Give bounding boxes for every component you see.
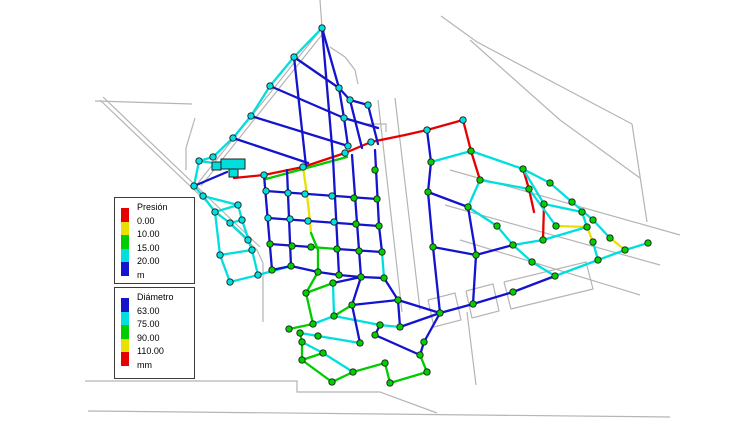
pipe-link[interactable] <box>428 192 433 247</box>
junction-node[interactable] <box>196 158 202 164</box>
junction-node[interactable] <box>315 269 321 275</box>
junction-node[interactable] <box>310 321 316 327</box>
tank-icon[interactable] <box>229 169 238 177</box>
pipe-link[interactable] <box>307 195 310 221</box>
pipe-link[interactable] <box>513 240 543 245</box>
junction-node[interactable] <box>382 360 388 366</box>
junction-node[interactable] <box>595 257 601 263</box>
pipe-link[interactable] <box>463 120 471 151</box>
junction-node[interactable] <box>230 135 236 141</box>
pipe-link[interactable] <box>497 226 513 245</box>
legend-color-chip <box>121 312 129 326</box>
pressure-legend-value: 0.00 <box>137 215 168 229</box>
junction-node[interactable] <box>421 339 427 345</box>
junction-node[interactable] <box>200 193 206 199</box>
street-line <box>470 40 640 178</box>
street-line <box>198 28 322 183</box>
legend-color-chip <box>121 339 129 353</box>
junction-node[interactable] <box>342 150 348 156</box>
pipe-link[interactable] <box>230 275 258 282</box>
pipe-link[interactable] <box>333 283 334 316</box>
junction-node[interactable] <box>300 164 306 170</box>
pipe-link[interactable] <box>352 305 360 343</box>
street-line <box>467 312 476 385</box>
pipe-link[interactable] <box>471 151 523 169</box>
junction-node[interactable] <box>305 218 311 224</box>
pipe-link[interactable] <box>318 336 360 343</box>
pipe-link[interactable] <box>289 324 313 329</box>
junction-node[interactable] <box>397 324 403 330</box>
junction-node[interactable] <box>547 180 553 186</box>
junction-node[interactable] <box>265 215 271 221</box>
junction-node[interactable] <box>255 272 261 278</box>
junction-node[interactable] <box>424 127 430 133</box>
pipe-link[interactable] <box>251 116 348 146</box>
junction-node[interactable] <box>358 274 364 280</box>
junction-node[interactable] <box>477 177 483 183</box>
pipe-link[interactable] <box>306 293 313 324</box>
junction-node[interactable] <box>590 239 596 245</box>
junction-node[interactable] <box>540 237 546 243</box>
junction-node[interactable] <box>267 241 273 247</box>
pipe-link[interactable] <box>431 151 471 162</box>
junction-node[interactable] <box>286 326 292 332</box>
junction-node[interactable] <box>468 148 474 154</box>
junction-node[interactable] <box>267 83 273 89</box>
pipe-link[interactable] <box>270 57 294 86</box>
junction-node[interactable] <box>341 115 347 121</box>
junction-node[interactable] <box>428 159 434 165</box>
junction-node[interactable] <box>351 195 357 201</box>
junction-node[interactable] <box>345 143 351 149</box>
pipe-link[interactable] <box>468 207 497 226</box>
junction-node[interactable] <box>529 259 535 265</box>
legend-color-chip <box>121 235 129 249</box>
pipe-link[interactable] <box>556 226 587 227</box>
junction-node[interactable] <box>217 252 223 258</box>
junction-node[interactable] <box>349 302 355 308</box>
junction-node[interactable] <box>319 25 325 31</box>
junction-node[interactable] <box>303 290 309 296</box>
junction-node[interactable] <box>269 267 275 273</box>
junction-node[interactable] <box>287 216 293 222</box>
diameter-legend-value: 110.00 <box>137 345 174 359</box>
junction-node[interactable] <box>320 350 326 356</box>
tank-icon[interactable] <box>221 159 245 169</box>
junction-node[interactable] <box>299 339 305 345</box>
junction-node[interactable] <box>245 237 251 243</box>
junction-node[interactable] <box>372 332 378 338</box>
diameter-legend-value: 75.00 <box>137 318 174 332</box>
tank-icon[interactable] <box>212 162 221 170</box>
junction-node[interactable] <box>299 357 305 363</box>
junction-node[interactable] <box>315 333 321 339</box>
junction-node[interactable] <box>590 217 596 223</box>
pressure-legend-title: Presión <box>137 201 168 215</box>
pipe-link[interactable] <box>433 247 440 313</box>
junction-node[interactable] <box>430 244 436 250</box>
pipe-link[interactable] <box>480 180 529 189</box>
junction-node[interactable] <box>212 209 218 215</box>
junction-node[interactable] <box>297 330 303 336</box>
pipe-link[interactable] <box>468 207 476 255</box>
pipe-link[interactable] <box>333 158 339 275</box>
street-line <box>85 381 437 413</box>
network-map[interactable] <box>0 0 750 423</box>
pipe-link[interactable] <box>220 250 252 255</box>
junction-node[interactable] <box>381 275 387 281</box>
junction-node[interactable] <box>357 340 363 346</box>
legend-color-chip <box>121 208 129 222</box>
junction-node[interactable] <box>330 280 336 286</box>
junction-node[interactable] <box>425 189 431 195</box>
street-line <box>460 240 640 295</box>
junction-node[interactable] <box>291 54 297 60</box>
pressure-legend[interactable]: Presión 0.00 10.00 15.00 20.00 m <box>114 197 195 284</box>
legend-color-chip <box>121 222 129 236</box>
pipe-link[interactable] <box>468 180 480 207</box>
junction-node[interactable] <box>520 166 526 172</box>
legend-color-chip <box>121 325 129 339</box>
pipe-link[interactable] <box>471 151 480 180</box>
pipe-link[interactable] <box>344 118 348 146</box>
junction-node[interactable] <box>376 223 382 229</box>
junction-node[interactable] <box>191 183 197 189</box>
pipe-link[interactable] <box>473 292 513 304</box>
junction-node[interactable] <box>356 248 362 254</box>
pipe-link[interactable] <box>384 278 398 300</box>
pipe-link[interactable] <box>294 57 306 166</box>
junction-node[interactable] <box>334 246 340 252</box>
junction-node[interactable] <box>210 154 216 160</box>
pipe-link[interactable] <box>428 192 468 207</box>
junction-node[interactable] <box>607 235 613 241</box>
junction-node[interactable] <box>510 242 516 248</box>
pipe-link[interactable] <box>440 304 473 313</box>
junction-node[interactable] <box>645 240 651 246</box>
junction-node[interactable] <box>379 249 385 255</box>
junction-node[interactable] <box>552 273 558 279</box>
junction-node[interactable] <box>368 139 374 145</box>
street-line <box>186 118 195 170</box>
pipe-link[interactable] <box>220 255 230 282</box>
junction-node[interactable] <box>331 219 337 225</box>
junction-node[interactable] <box>353 221 359 227</box>
junction-node[interactable] <box>249 247 255 253</box>
pipe-link[interactable] <box>433 247 476 255</box>
pipe-link[interactable] <box>252 250 258 275</box>
junction-node[interactable] <box>424 369 430 375</box>
street-line <box>320 0 322 28</box>
pipe-link[interactable] <box>213 138 233 157</box>
pipe-link[interactable] <box>427 120 463 130</box>
street-line <box>330 47 358 84</box>
junction-node[interactable] <box>308 244 314 250</box>
diameter-legend-unit: mm <box>137 359 174 373</box>
legend-color-chip <box>121 262 129 276</box>
junction-node[interactable] <box>526 186 532 192</box>
junction-node[interactable] <box>336 85 342 91</box>
junction-node[interactable] <box>541 201 547 207</box>
pipe-link[interactable] <box>352 300 398 305</box>
junction-node[interactable] <box>372 167 378 173</box>
pipe-link[interactable] <box>390 372 427 383</box>
pipe-link[interactable] <box>270 86 344 118</box>
pipe-link[interactable] <box>473 255 476 304</box>
diameter-color-bar <box>121 298 129 376</box>
junction-node[interactable] <box>387 380 393 386</box>
pipe-link[interactable] <box>593 220 610 238</box>
junction-node[interactable] <box>437 310 443 316</box>
diameter-legend[interactable]: Diámetro 63.00 75.00 90.00 110.00 mm <box>114 287 195 379</box>
junction-node[interactable] <box>302 191 308 197</box>
junction-node[interactable] <box>584 224 590 230</box>
legend-color-chip <box>121 249 129 263</box>
junction-node[interactable] <box>374 196 380 202</box>
junction-node[interactable] <box>227 220 233 226</box>
street-line <box>632 124 647 222</box>
junction-node[interactable] <box>395 297 401 303</box>
junction-node[interactable] <box>553 223 559 229</box>
street-line <box>441 16 632 124</box>
pipe-link[interactable] <box>382 252 384 278</box>
junction-node[interactable] <box>494 223 500 229</box>
junction-node[interactable] <box>235 202 241 208</box>
pipe-link[interactable] <box>352 277 361 305</box>
junction-node[interactable] <box>460 117 466 123</box>
junction-node[interactable] <box>329 379 335 385</box>
diameter-legend-title: Diámetro <box>137 291 174 305</box>
pipe-link[interactable] <box>268 218 379 226</box>
pipe-link[interactable] <box>427 130 431 162</box>
pipe-link[interactable] <box>266 191 377 199</box>
diameter-legend-value: 63.00 <box>137 305 174 319</box>
junction-node[interactable] <box>288 263 294 269</box>
junction-node[interactable] <box>331 313 337 319</box>
pipe-link[interactable] <box>398 300 400 327</box>
junction-node[interactable] <box>365 102 371 108</box>
diameter-legend-value: 90.00 <box>137 332 174 346</box>
junction-node[interactable] <box>417 352 423 358</box>
junction-node[interactable] <box>579 209 585 215</box>
junction-node[interactable] <box>239 217 245 223</box>
pipe-link[interactable] <box>311 247 337 249</box>
pressure-color-bar <box>121 208 129 281</box>
pressure-legend-value: 20.00 <box>137 255 168 269</box>
junction-node[interactable] <box>377 322 383 328</box>
junction-node[interactable] <box>470 301 476 307</box>
junction-node[interactable] <box>261 172 267 178</box>
pipe-link[interactable] <box>375 335 420 355</box>
pipe-link[interactable] <box>302 360 332 382</box>
pipe-link[interactable] <box>323 353 353 372</box>
network-map-window: Presión 0.00 10.00 15.00 20.00 m Diámetr… <box>0 0 750 423</box>
legend-color-chip <box>121 352 129 366</box>
junction-node[interactable] <box>473 252 479 258</box>
pipe-link[interactable] <box>379 226 382 252</box>
junction-node[interactable] <box>227 279 233 285</box>
junction-node[interactable] <box>248 113 254 119</box>
legend-color-chip <box>121 298 129 312</box>
junction-node[interactable] <box>569 199 575 205</box>
pipe-link[interactable] <box>428 162 431 192</box>
pressure-legend-unit: m <box>137 269 168 283</box>
junction-node[interactable] <box>285 190 291 196</box>
street-line <box>88 411 670 417</box>
pipe-link[interactable] <box>291 266 318 272</box>
street-line <box>504 262 593 309</box>
pressure-legend-value: 10.00 <box>137 228 168 242</box>
junction-node[interactable] <box>622 247 628 253</box>
pipe-link[interactable] <box>375 150 379 226</box>
junction-node[interactable] <box>289 243 295 249</box>
junction-node[interactable] <box>347 97 353 103</box>
junction-node[interactable] <box>510 289 516 295</box>
pipe-link[interactable] <box>352 155 361 277</box>
junction-node[interactable] <box>465 204 471 210</box>
junction-node[interactable] <box>350 369 356 375</box>
junction-node[interactable] <box>336 272 342 278</box>
pipe-link[interactable] <box>353 363 385 372</box>
junction-node[interactable] <box>329 193 335 199</box>
junction-node[interactable] <box>263 188 269 194</box>
pipe-link[interactable] <box>215 212 220 255</box>
pressure-legend-value: 15.00 <box>137 242 168 256</box>
pipe-link[interactable] <box>350 100 362 148</box>
